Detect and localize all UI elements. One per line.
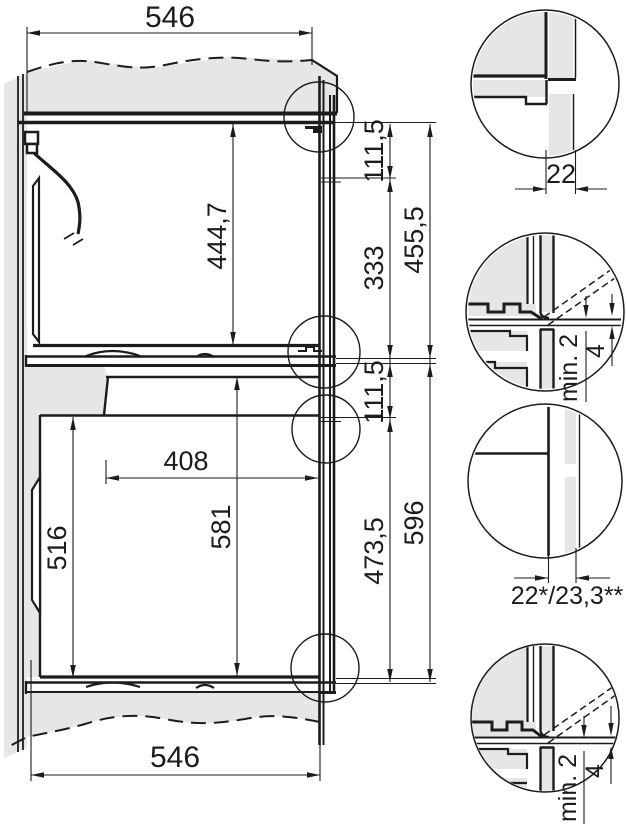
dimension-chain-inner: 111,5 333 111,5 473,5: [359, 119, 393, 682]
bottom-shelf: [25, 681, 336, 694]
upper-oven-side-strip: [33, 178, 39, 342]
dim-label-top-edge-gap: 22: [546, 159, 576, 189]
drawing-stroke: [608, 723, 613, 736]
drawing-stroke: [609, 326, 614, 339]
dim-label-upper-rear-section: 333: [359, 245, 389, 290]
main-drawing: 546 546 444,7 408 516: [4, 1, 436, 781]
middle-shelf: [25, 347, 336, 677]
dim-label-min-clearance-upper: min. 2: [555, 334, 583, 402]
door-swing-dashed-line: [544, 684, 617, 735]
drawing-stroke: [549, 94, 571, 158]
drawing-stroke: [565, 407, 576, 464]
dim-label-lower-front-height: 516: [42, 525, 72, 570]
dim-label-lower-rear-section: 473,5: [359, 517, 389, 585]
niche-top-panel: [18, 114, 337, 134]
drawing-stroke: [234, 377, 240, 390]
cable-break-mark: [64, 233, 74, 239]
drawing-stroke: [70, 417, 76, 430]
dim-label-upper-cavity-height: 444,7: [202, 202, 232, 270]
drawing-stroke: [472, 778, 527, 792]
drawing-stroke: [549, 8, 573, 79]
dim-label-lower-rear-height: 581: [206, 504, 236, 549]
drawing-stroke: [575, 186, 588, 191]
mains-connection-box-lower: [27, 144, 37, 153]
worktop: [27, 57, 337, 113]
installation-diagram: 546 546 444,7 408 516: [0, 0, 627, 828]
drawing-stroke: [106, 475, 119, 481]
dimension-408: 408: [106, 446, 318, 484]
drawing-stroke: [470, 80, 546, 97]
drawing-stroke: [387, 669, 393, 682]
drawing-stroke: [305, 475, 318, 481]
drawing-stroke: [541, 234, 553, 312]
detail-marker-lower-front: [292, 395, 360, 463]
dim-label-upper-total: 455,5: [399, 206, 429, 274]
drawing-stroke: [230, 332, 236, 345]
drawing-stroke: [31, 772, 44, 778]
dim-label-bottom-width: 546: [150, 741, 200, 774]
drawing-stroke: [470, 407, 580, 556]
drawing-stroke: [533, 186, 546, 191]
drawing-stroke: [576, 575, 589, 580]
dimension-444-7: 444,7: [202, 124, 236, 345]
drawing-stroke: [535, 575, 548, 580]
detail-side-panel: 22*/23,3**: [468, 404, 624, 610]
drawing-stroke: [609, 303, 614, 316]
detail-markers: [284, 82, 360, 702]
dim-label-strip-upper: 4: [582, 344, 610, 358]
drawing-stroke: [196, 685, 214, 688]
drawing-stroke: [470, 97, 547, 104]
drawing-stroke: [27, 57, 337, 113]
front-frame: [320, 76, 335, 745]
drawing-stroke: [299, 30, 312, 36]
drawing-stroke: [472, 749, 527, 769]
cable-break-mark: [73, 239, 83, 245]
drawing-stroke: [234, 663, 240, 676]
drawing-stroke: [472, 646, 527, 722]
drawing-stroke: [27, 693, 320, 737]
dim-label-lower-total: 596: [399, 500, 429, 545]
drawing-stroke: [541, 646, 553, 731]
dimension-4-upper: 4: [582, 294, 615, 366]
detail-lower-junction: min. 2 4: [471, 644, 620, 824]
dim-label-upper-front-panel: 111,5: [359, 119, 389, 183]
lower-oven-side-strip: [32, 477, 40, 613]
drawing-stroke: [230, 124, 236, 137]
drawing-stroke: [565, 477, 576, 556]
drawing-stroke: [541, 747, 553, 792]
door-swing-dashed-line: [544, 264, 619, 317]
mains-connection-box: [25, 132, 38, 144]
drawing-stroke: [427, 669, 433, 682]
drawing-stroke: [427, 364, 433, 377]
dim-label-top-width: 546: [145, 1, 195, 34]
drawing-stroke: [581, 725, 586, 738]
drawing-stroke: [470, 8, 576, 158]
drawing-stroke: [387, 345, 393, 358]
drawing-stroke: [307, 772, 320, 778]
drawing-stroke: [467, 331, 527, 351]
plinth: [6, 693, 320, 748]
detail-circle: [468, 404, 622, 558]
detail-top-edge: 22: [470, 8, 619, 194]
dim-label-min-clearance-lower: min. 2: [554, 754, 582, 822]
detail-upper-junction: min. 2 4: [466, 233, 624, 402]
drawing-stroke: [27, 30, 40, 36]
power-cable: [34, 153, 80, 234]
dimension-516: 516: [42, 417, 76, 678]
upper-oven: [25, 132, 320, 357]
door-swing-dashed-line: [548, 273, 622, 325]
drawing-stroke: [467, 234, 622, 391]
dimension-chain-outer: 455,5 596: [399, 124, 433, 682]
side-wall: [4, 73, 27, 758]
dim-label-lower-front-panel: 111,5: [359, 360, 389, 424]
drawing-stroke: [541, 329, 553, 391]
dimension-581: 581: [206, 377, 240, 676]
drawing-stroke: [427, 124, 433, 137]
drawing-stroke: [467, 304, 536, 316]
diagram-svg: 546 546 444,7 408 516: [0, 0, 627, 828]
dim-label-panel-thickness: 22*/23,3**: [511, 582, 624, 610]
drawing-stroke: [467, 234, 527, 304]
dimension-panel-thickness: 22*/23,3**: [511, 548, 624, 610]
drawing-stroke: [427, 345, 433, 358]
drawing-stroke: [583, 305, 588, 318]
dimension-4-lower: 4: [581, 706, 614, 784]
drawing-stroke: [86, 351, 140, 356]
dim-label-lower-cavity-depth: 408: [163, 446, 208, 476]
dim-label-strip-lower: 4: [581, 764, 609, 778]
drawing-stroke: [470, 8, 546, 76]
